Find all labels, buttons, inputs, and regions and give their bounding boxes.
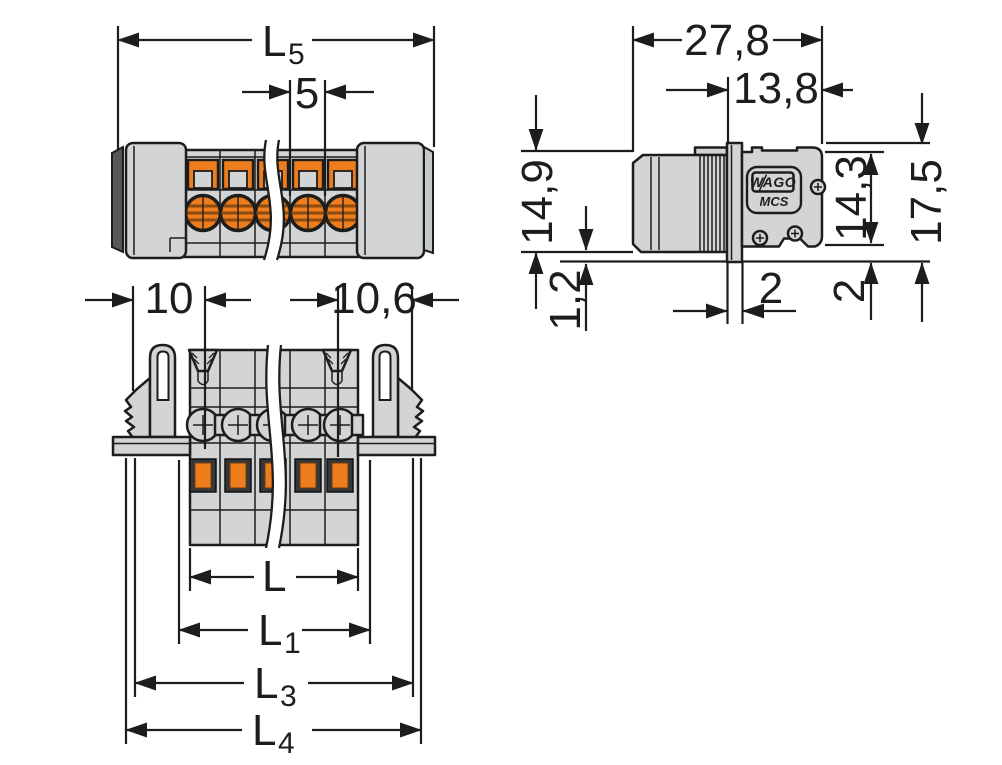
plug-housing — [633, 155, 727, 252]
screw-icon — [788, 227, 802, 241]
technical-drawing: L 5 5 WAGO MCS — [0, 0, 1002, 765]
connector-front — [112, 140, 433, 260]
mounting-flange — [727, 143, 742, 262]
connector-bottom — [113, 345, 435, 548]
left-locking-lever — [113, 345, 190, 455]
connector-side: WAGO MCS — [633, 143, 825, 262]
dim-13-8: 13,8 — [666, 64, 853, 142]
right-flange — [357, 143, 424, 258]
dim-label-14-3: 14,3 — [827, 155, 876, 241]
wago-logo: WAGO — [750, 174, 796, 190]
dim-label-14-9: 14,9 — [513, 159, 562, 245]
bottom-view: 10 10,6 L L 1 L 3 — [85, 274, 459, 760]
left-end-strip — [112, 147, 123, 252]
screw-icon — [753, 231, 767, 245]
drawing-page: L 5 5 WAGO MCS — [0, 0, 1002, 765]
dim-label-l3: L — [254, 659, 278, 708]
mcs-label: MCS — [760, 194, 789, 209]
dim-label-10: 10 — [145, 274, 194, 323]
dim-label-l5-sub: 5 — [288, 38, 305, 71]
dim-label-l1: L — [258, 606, 282, 655]
dim-label-27-8: 27,8 — [684, 16, 770, 65]
left-flange — [126, 143, 186, 258]
dim-label-2-flange: 2 — [759, 264, 783, 313]
dim-label-l3-sub: 3 — [280, 680, 297, 713]
right-end-strip — [424, 147, 433, 253]
dim-label-pitch: 5 — [295, 69, 319, 118]
dim-label-2-offset: 2 — [825, 279, 874, 303]
rib-lines — [700, 156, 724, 251]
side-view: WAGO MCS 27,8 13,8 14,9 1,2 — [513, 16, 951, 331]
dim-l5: L 5 — [118, 17, 434, 150]
dim-label-l4-sub: 4 — [278, 727, 295, 760]
dim-17-5: 17,5 — [902, 93, 951, 322]
dim-2-offset: 2 — [825, 263, 874, 320]
dim-2-flange: 2 — [673, 262, 796, 324]
dim-label-1-2: 1,2 — [541, 269, 590, 330]
dim-label-l: L — [262, 552, 286, 601]
screw-icon — [811, 180, 825, 194]
dim-label-l1-sub: 1 — [284, 627, 301, 660]
front-view: L 5 5 — [112, 17, 434, 260]
dim-label-10-6: 10,6 — [331, 274, 417, 323]
dim-label-l4: L — [252, 706, 276, 755]
dim-label-17-5: 17,5 — [902, 159, 951, 245]
dim-label-l5: L — [262, 17, 286, 66]
dim-label-13-8: 13,8 — [733, 64, 819, 113]
dim-l: L — [190, 548, 358, 601]
dim-14-3: 14,3 — [825, 152, 884, 245]
right-locking-lever — [358, 345, 435, 455]
